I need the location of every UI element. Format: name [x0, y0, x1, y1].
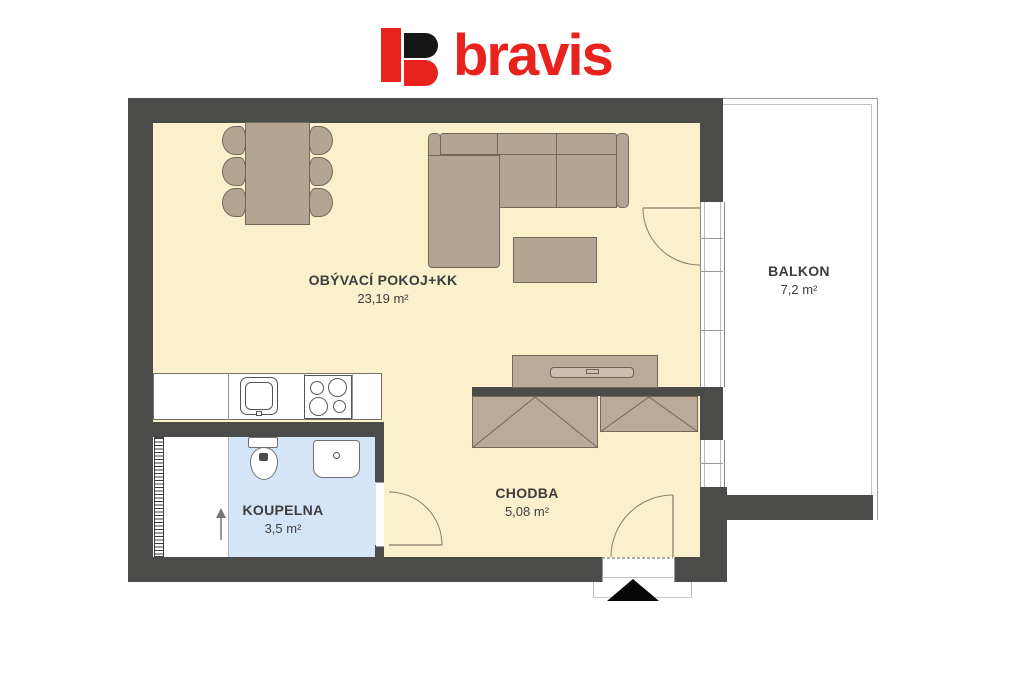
logo-black-bump: [404, 33, 438, 58]
counter-divider: [352, 373, 353, 420]
kitchen-sink-basin: [245, 382, 273, 410]
room-area: 7,2 m²: [768, 282, 830, 297]
wardrobe-left: [472, 396, 598, 448]
wall-bathroom-right-upper: [375, 437, 384, 482]
brand-name: bravis: [453, 30, 612, 82]
room-area: 5,08 m²: [495, 504, 558, 519]
balcony-rail-right-inner: [871, 104, 872, 520]
glazing-mullion: [700, 238, 723, 239]
floor-plan-page: bravis: [0, 0, 1024, 680]
wardrobe-right: [600, 396, 698, 432]
sofa-cushion-divider: [497, 134, 498, 155]
sofa-chaise: [428, 155, 500, 268]
dining-chair: [222, 188, 246, 217]
brand-logo: bravis: [381, 26, 612, 82]
room-name: CHODBA: [495, 485, 558, 501]
hob-burner: [333, 400, 346, 413]
sink-tap: [256, 411, 262, 416]
towel-radiator: [154, 437, 164, 557]
glazing-mullion: [700, 463, 723, 464]
coffee-table: [513, 237, 597, 283]
wall-right-upper: [700, 98, 723, 202]
room-label-hallway: CHODBA 5,08 m²: [495, 485, 558, 519]
hob-burner: [310, 381, 324, 395]
brand-logo-icon: [381, 26, 439, 82]
entrance-threshold-line: [602, 577, 673, 578]
glazing-mullion: [700, 330, 723, 331]
room-label-balcony: BALKON 7,2 m²: [768, 263, 830, 297]
room-name: OBÝVACÍ POKOJ+KK: [309, 272, 458, 288]
room-name: BALKON: [768, 263, 830, 279]
wall-top: [128, 98, 723, 123]
balcony-rail-top-outer: [723, 98, 878, 99]
balcony-rail-right-outer: [877, 98, 878, 520]
hob-burner: [328, 378, 347, 397]
washbasin-drain: [333, 452, 340, 459]
room-label-living: OBÝVACÍ POKOJ+KK 23,19 m²: [309, 272, 458, 306]
room-label-bathroom: KOUPELNA 3,5 m²: [243, 502, 324, 536]
wall-bathroom-top: [128, 422, 384, 437]
counter-divider: [228, 373, 229, 420]
wall-hallway-divider: [472, 387, 723, 396]
balcony-glazing-upper: [700, 202, 725, 387]
dining-table: [245, 122, 310, 225]
balcony-rail-top-inner: [723, 104, 872, 105]
room-area: 23,19 m²: [309, 291, 458, 306]
entrance-door-opening: [602, 557, 675, 582]
room-name: KOUPELNA: [243, 502, 324, 518]
tv-stand: [586, 369, 599, 374]
bathroom-door-opening: [376, 482, 384, 547]
logo-red-bump: [404, 60, 438, 86]
toilet-flush: [259, 453, 268, 461]
wall-balcony-bottom: [718, 495, 873, 520]
glazing-inner-lines: [704, 202, 721, 387]
wall-bottom-left: [128, 557, 602, 582]
dining-chair: [222, 157, 246, 186]
hob-burner: [309, 397, 328, 416]
glazing-mullion: [700, 271, 723, 272]
room-area: 3,5 m²: [243, 521, 324, 536]
wall-left: [128, 98, 153, 582]
entrance-step: [593, 582, 692, 598]
washbasin: [313, 440, 360, 478]
sofa-armrest-right: [616, 133, 629, 208]
dining-chair: [222, 126, 246, 155]
sofa-cushion-divider: [556, 134, 557, 208]
logo-red-bar: [381, 28, 401, 82]
sofa-backrest: [440, 133, 617, 155]
